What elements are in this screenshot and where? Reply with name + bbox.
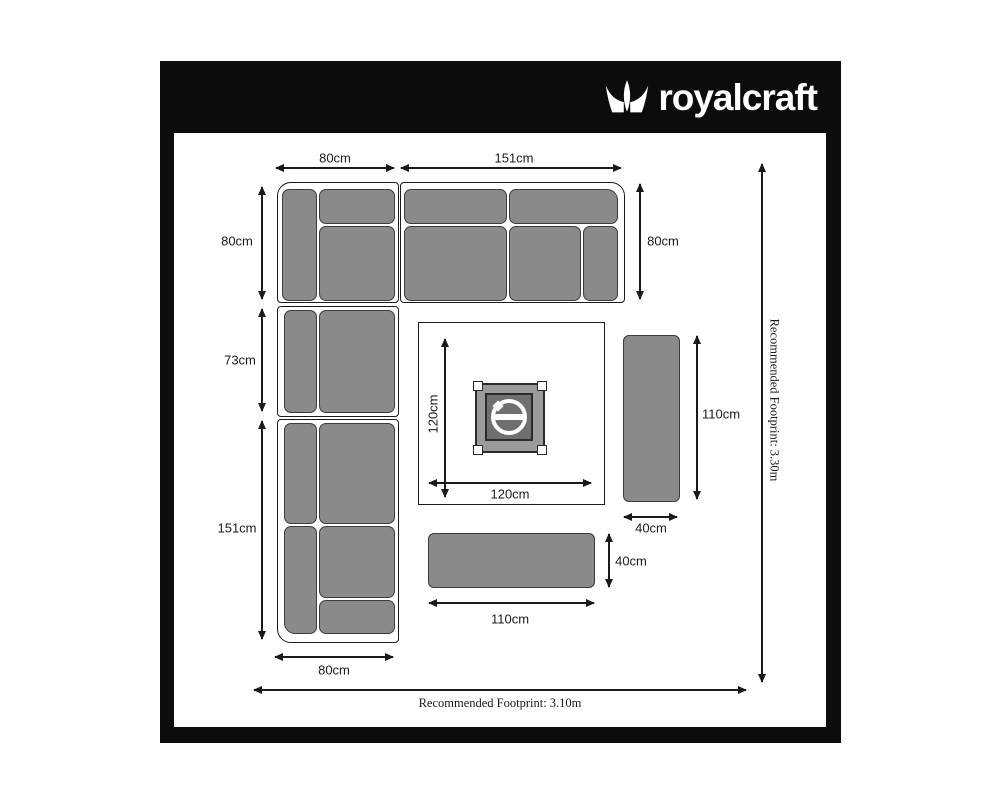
dim-arrow-table-depth — [440, 338, 450, 498]
dim-label-right-section-width: 151cm — [494, 152, 533, 165]
dim-label-right-section-depth: 80cm — [647, 235, 679, 248]
product-dimension-diagram: royalcraft — [0, 0, 1000, 800]
brand-name: royalcraft — [658, 79, 817, 116]
diagram-canvas: 80cm 151cm 80cm 80cm 73cm 151cm 80cm 120… — [174, 133, 826, 727]
dim-label-table-width: 120cm — [490, 488, 529, 501]
dim-label-bench-right-length: 110cm — [702, 408, 740, 421]
dim-arrow-left-bottom-height — [257, 420, 267, 640]
dim-label-bench-right-width: 40cm — [635, 522, 667, 535]
crown-icon — [604, 79, 650, 115]
dim-label-corner-depth: 80cm — [221, 235, 253, 248]
dim-label-table-depth: 120cm — [427, 394, 440, 433]
fire-pit-corner-top-right — [537, 381, 547, 391]
dim-arrow-footprint-horizontal — [253, 685, 747, 695]
dim-arrow-left-section-width — [274, 652, 394, 662]
dim-label-left-bottom-height: 151cm — [217, 522, 256, 535]
brand-logo: royalcraft — [604, 79, 817, 116]
dim-label-corner-width: 80cm — [319, 152, 351, 165]
footprint-label-horizontal: Recommended Footprint: 3.10m — [419, 697, 582, 710]
brand-banner: royalcraft — [160, 61, 841, 133]
sofa-left-mid-seat-cushion — [319, 310, 395, 413]
footprint-label-vertical: Recommended Footprint: 3.30m — [768, 319, 781, 482]
dim-arrow-bench-right-length — [692, 335, 702, 500]
dim-label-bench-bottom-width: 40cm — [615, 555, 647, 568]
dim-arrow-left-mid-height — [257, 308, 267, 412]
sofa-left-bottom-seat-cushion-2 — [319, 526, 395, 598]
fire-pit-corner-bottom-right — [537, 445, 547, 455]
sofa-top-back-cushion-1 — [404, 189, 507, 224]
dim-label-left-mid-height: 73cm — [224, 354, 256, 367]
dim-arrow-bench-bottom-length — [428, 598, 595, 608]
bench-bottom — [428, 533, 595, 588]
sofa-corner-seat-cushion — [319, 226, 395, 301]
sofa-left-bottom-seat-cushion-1 — [319, 423, 395, 524]
black-frame: royalcraft — [160, 61, 841, 743]
dim-arrow-right-section-depth — [635, 183, 645, 300]
sofa-left-bottom-back-cushion-2 — [284, 526, 317, 634]
sofa-top-back-cushion-2 — [509, 189, 618, 224]
fire-pit-corner-top-left — [473, 381, 483, 391]
bench-right — [623, 335, 680, 502]
dim-arrow-bench-bottom-width — [604, 533, 614, 588]
dim-label-bench-bottom-length: 110cm — [491, 613, 529, 626]
sofa-left-mid-back-cushion — [284, 310, 317, 413]
fire-pit-corner-bottom-left — [473, 445, 483, 455]
sofa-top-seat-cushion-1 — [404, 226, 507, 301]
sofa-corner-back-top-cushion — [319, 189, 395, 224]
sofa-top-armrest — [583, 226, 618, 301]
sofa-left-bottom-back-cushion-1 — [284, 423, 317, 524]
dim-arrow-footprint-vertical — [757, 163, 767, 683]
dim-arrow-corner-depth — [257, 186, 267, 300]
fire-pit-icon — [475, 383, 545, 453]
sofa-corner-back-left-cushion — [282, 189, 317, 301]
fire-pit-knob-icon — [492, 400, 503, 411]
sofa-left-bottom-armrest — [319, 600, 395, 634]
sofa-top-seat-cushion-2 — [509, 226, 581, 301]
fire-pit-burner-bar — [492, 414, 526, 420]
fire-pit-bowl — [485, 393, 533, 441]
dim-label-left-section-width: 80cm — [318, 664, 350, 677]
